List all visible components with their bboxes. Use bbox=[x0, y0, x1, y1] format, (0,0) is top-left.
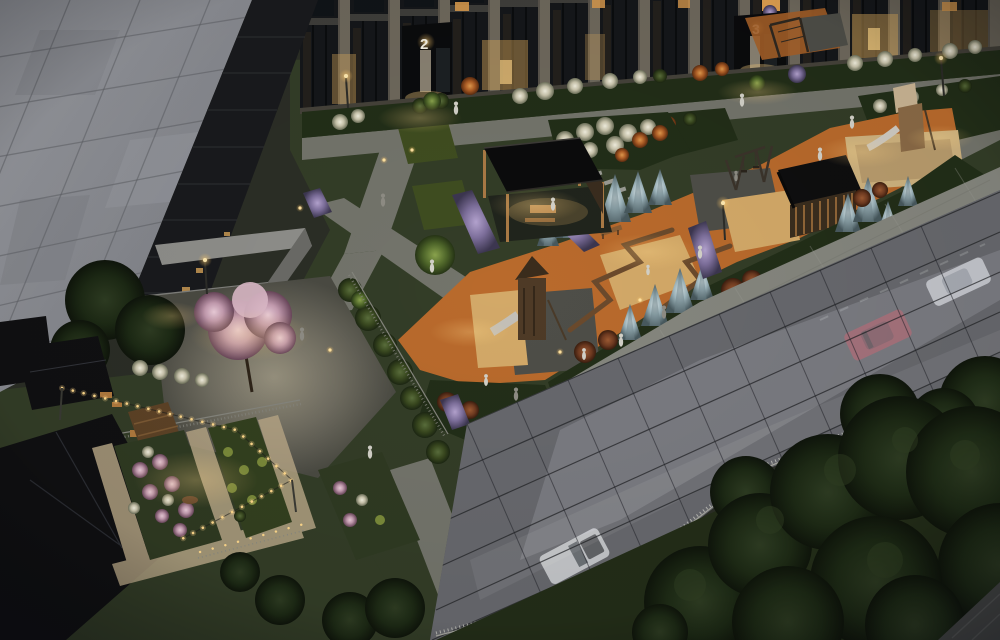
night-vignette bbox=[0, 0, 1000, 640]
courtyard-render: 2 3 bbox=[0, 0, 1000, 640]
scene-canvas: 2 3 bbox=[0, 0, 1000, 640]
